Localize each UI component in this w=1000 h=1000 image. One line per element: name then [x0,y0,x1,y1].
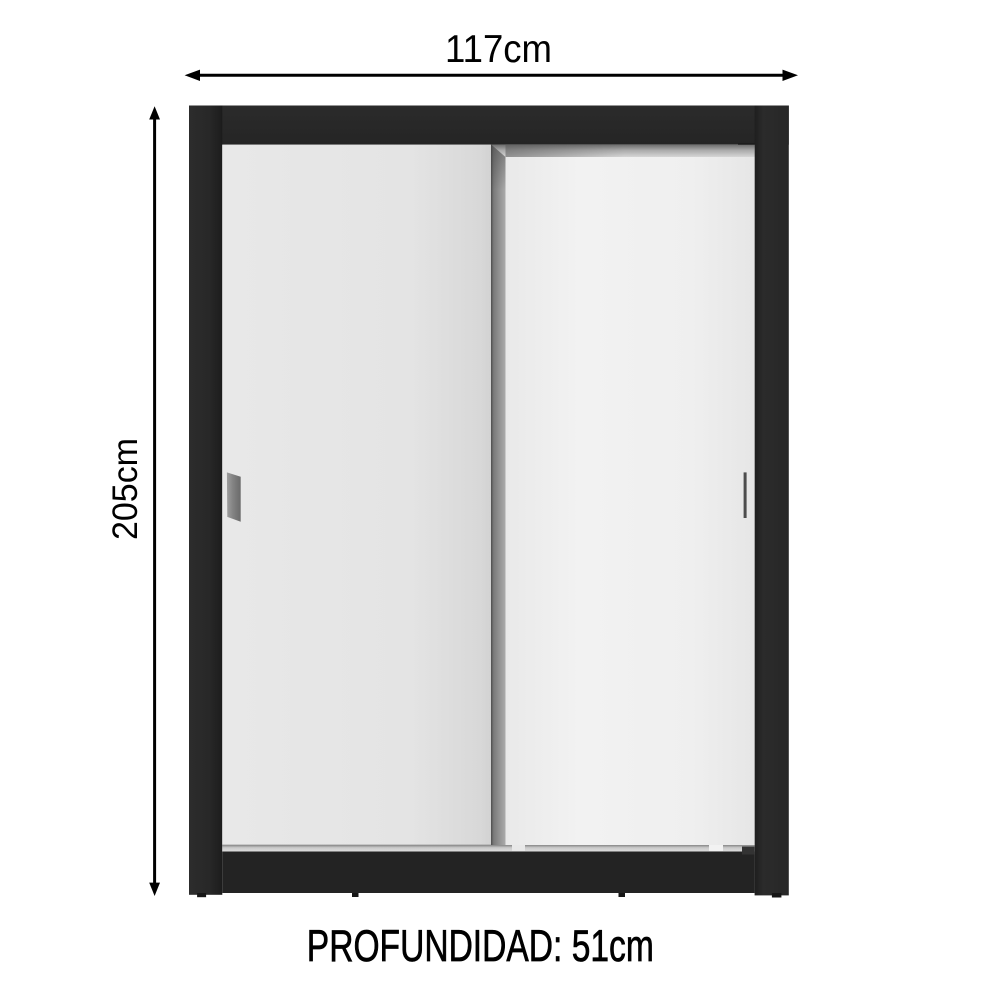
svg-text:117cm: 117cm [445,28,552,71]
svg-text:205cm: 205cm [106,438,145,540]
svg-text:PROFUNDIDAD: 51cm: PROFUNDIDAD: 51cm [307,922,654,971]
